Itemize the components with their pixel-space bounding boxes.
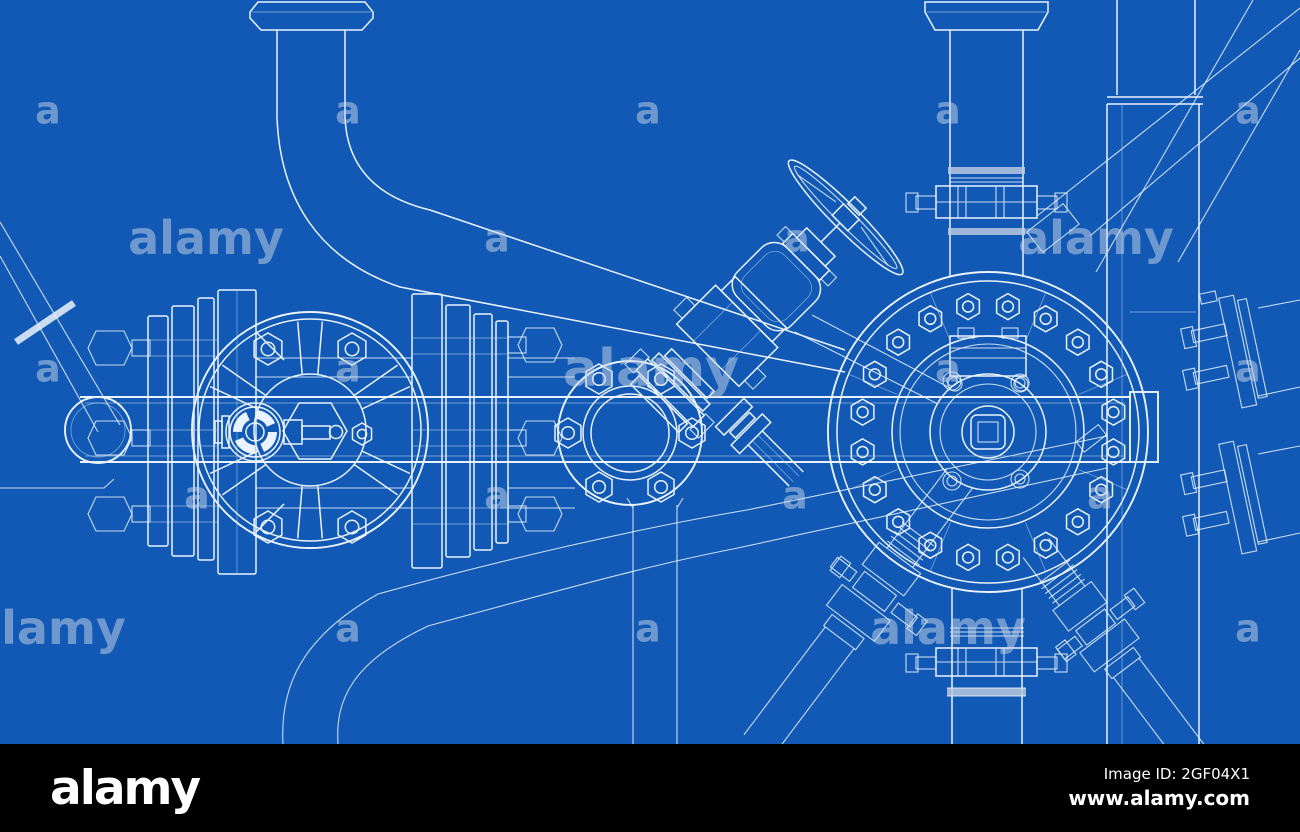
watermark-text: alamy <box>1018 211 1174 265</box>
watermark-text: a <box>935 88 961 132</box>
blueprint-drawing: aaaaaalamyaaalamyaaalamyaaaaaaalamyaaala… <box>0 0 1300 744</box>
watermark-text: alamy <box>563 339 739 399</box>
watermark-text: a <box>782 473 808 517</box>
watermark-text: a <box>1235 88 1261 132</box>
watermark-text: a <box>635 88 661 132</box>
stock-photo-preview: aaaaaalamyaaalamyaaalamyaaaaaaalamyaaala… <box>0 0 1300 832</box>
website-url-text: www.alamy.com <box>1068 785 1250 812</box>
watermark-text: a <box>335 606 361 650</box>
image-id-block: Image ID: 2GF04X1 www.alamy.com <box>1068 764 1250 811</box>
watermark-text: a <box>484 473 510 517</box>
watermark-text: a <box>1087 473 1113 517</box>
watermark-text: a <box>484 216 510 260</box>
watermark-text: a <box>784 216 810 260</box>
watermark-text: a <box>335 346 361 390</box>
alamy-logo: alamy <box>50 765 199 812</box>
watermark-text: alamy <box>0 601 126 655</box>
watermark-text: a <box>1235 346 1261 390</box>
watermark-text: a <box>1235 606 1261 650</box>
watermark-text: a <box>184 473 210 517</box>
watermark-text: a <box>35 346 61 390</box>
watermark-text: a <box>35 88 61 132</box>
watermark-text: a <box>935 346 961 390</box>
watermark-text: alamy <box>870 601 1026 655</box>
alamy-footer-bar: alamy Image ID: 2GF04X1 www.alamy.com <box>0 744 1300 832</box>
watermark-text: alamy <box>128 211 284 265</box>
watermark-text: a <box>335 88 361 132</box>
image-id-text: Image ID: 2GF04X1 <box>1068 764 1250 784</box>
watermark-text: a <box>635 606 661 650</box>
